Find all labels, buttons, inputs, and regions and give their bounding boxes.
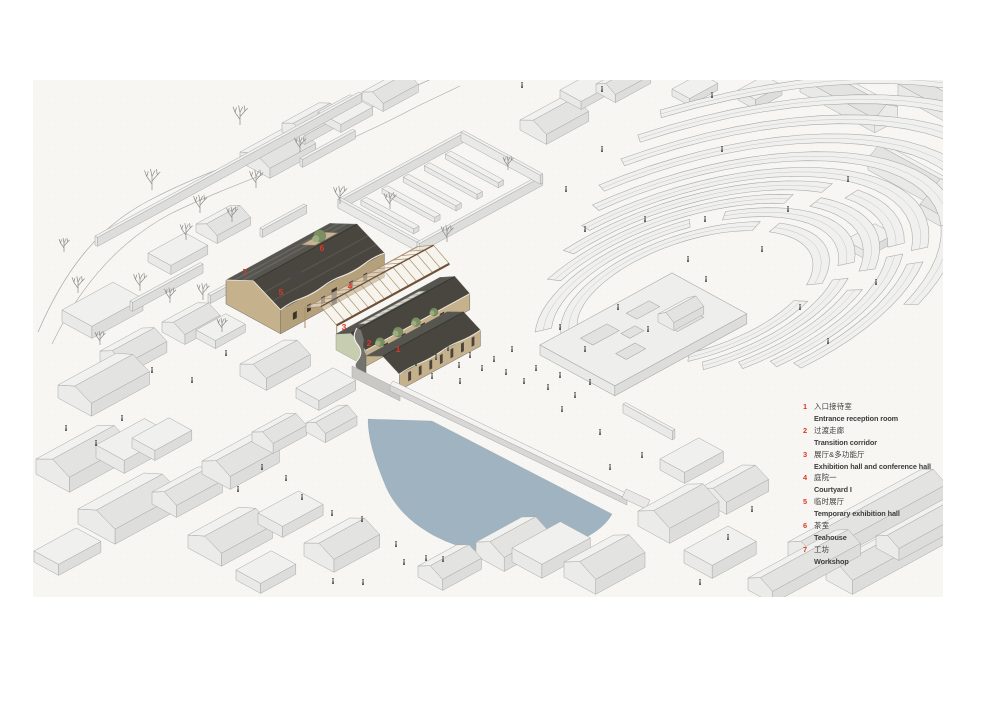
legend-item-label-en: Temporary exhibition hall <box>803 508 953 520</box>
vegetation <box>430 311 435 316</box>
legend-item-label-en: Workshop <box>803 556 953 568</box>
legend-item-label-zh: 临时展厅 <box>814 496 844 508</box>
colonnade-opening <box>461 342 464 353</box>
legend: 1入口接待室 Entrance reception room 2过渡走廊 Tra… <box>803 401 953 568</box>
legend-item-label-en: Entrance reception room <box>803 413 953 425</box>
person-figure <box>511 346 513 348</box>
person-figure <box>447 345 449 347</box>
person-figure <box>431 373 433 375</box>
colonnade-opening <box>472 336 475 347</box>
legend-item-label-zh: 展厅&多功能厅 <box>814 449 865 461</box>
colonnade-opening <box>419 365 422 376</box>
person-figure <box>584 226 586 228</box>
person-figure <box>481 365 483 367</box>
person-figure <box>121 415 123 417</box>
person-figure <box>584 346 586 348</box>
person-figure <box>442 556 444 558</box>
person-figure <box>332 578 334 580</box>
legend-item-label-zh: 入口接待室 <box>814 401 852 413</box>
legend-item: 5临时展厅 Temporary exhibition hall <box>803 496 953 520</box>
person-figure <box>285 475 287 477</box>
legend-item-number: 2 <box>803 425 814 437</box>
person-figure <box>565 186 567 188</box>
legend-item: 1入口接待室 Entrance reception room <box>803 401 953 425</box>
legend-item: 2过渡走廊 Transition corridor <box>803 425 953 449</box>
building-marker-5: 5 <box>279 287 284 297</box>
person-figure <box>875 279 877 281</box>
vegetation <box>411 321 416 326</box>
legend-item: 4庭院一 Courtyard I <box>803 472 953 496</box>
person-figure <box>699 579 701 581</box>
colonnade-opening <box>408 371 411 382</box>
person-figure <box>191 377 193 379</box>
legend-item-number: 3 <box>803 449 814 461</box>
person-figure <box>644 216 646 218</box>
site-axonometric-drawing: 1 2 3 4 5 6 7 1入口接待室 Entrance reception … <box>0 0 1003 710</box>
person-figure <box>493 356 495 358</box>
person-figure <box>535 365 537 367</box>
courtyard-tree <box>312 235 319 242</box>
person-figure <box>261 464 263 466</box>
legend-item-number: 1 <box>803 401 814 413</box>
person-figure <box>751 506 753 508</box>
vegetation <box>375 341 380 346</box>
person-figure <box>301 494 303 496</box>
person-figure <box>521 82 523 84</box>
person-figure <box>827 338 829 340</box>
legend-item-number: 6 <box>803 520 814 532</box>
person-figure <box>601 146 603 148</box>
person-figure <box>95 440 97 442</box>
person-figure <box>711 92 713 94</box>
building-marker-4: 4 <box>348 281 353 291</box>
person-figure <box>547 384 549 386</box>
person-figure <box>361 516 363 518</box>
person-figure <box>704 216 706 218</box>
site-plan-canvas <box>0 0 1003 710</box>
context-building-wall <box>540 174 543 184</box>
person-figure <box>237 486 239 488</box>
person-figure <box>599 429 601 431</box>
person-figure <box>647 326 649 328</box>
building-marker-7: 7 <box>243 267 248 277</box>
person-figure <box>458 362 460 364</box>
legend-item-number: 5 <box>803 496 814 508</box>
person-figure <box>362 579 364 581</box>
person-figure <box>601 86 603 88</box>
person-figure <box>523 378 525 380</box>
person-figure <box>574 392 576 394</box>
person-figure <box>705 276 707 278</box>
person-figure <box>331 510 333 512</box>
legend-item: 7工坊 Workshop <box>803 544 953 568</box>
legend-item-number: 7 <box>803 544 814 556</box>
person-figure <box>609 464 611 466</box>
person-figure <box>721 146 723 148</box>
person-figure <box>559 372 561 374</box>
person-figure <box>847 176 849 178</box>
building-marker-6: 6 <box>320 243 325 253</box>
legend-item-label-zh: 工坊 <box>814 544 829 556</box>
building-marker-3: 3 <box>342 322 347 332</box>
legend-item-label-en: Courtyard I <box>803 484 953 496</box>
person-figure <box>425 555 427 557</box>
legend-item-label-en: Transition corridor <box>803 437 953 449</box>
person-figure <box>559 324 561 326</box>
legend-item-label-en: Exhibition hall and conference hall <box>803 461 953 473</box>
person-figure <box>395 541 397 543</box>
person-figure <box>589 379 591 381</box>
legend-item-label-zh: 茶室 <box>814 520 829 532</box>
context-building-gable <box>968 219 987 241</box>
person-figure <box>225 350 227 352</box>
building-marker-1: 1 <box>396 344 401 354</box>
context-building-gable <box>951 101 970 125</box>
person-figure <box>65 425 67 427</box>
person-figure <box>423 346 425 348</box>
person-figure <box>505 369 507 371</box>
person-figure <box>435 354 437 356</box>
colonnade-opening <box>440 354 443 365</box>
person-figure <box>415 360 417 362</box>
person-figure <box>799 304 801 306</box>
person-figure <box>469 352 471 354</box>
person-figure <box>787 206 789 208</box>
person-figure <box>687 256 689 258</box>
person-figure <box>761 246 763 248</box>
legend-item: 3展厅&多功能厅 Exhibition hall and conference … <box>803 449 953 473</box>
person-figure <box>727 534 729 536</box>
legend-item-label-en: Teahouse <box>803 532 953 544</box>
person-figure <box>459 378 461 380</box>
context-building-wall <box>130 301 133 311</box>
colonnade-opening <box>429 359 432 370</box>
colonnade-opening <box>451 348 454 359</box>
legend-item: 6茶室 Teahouse <box>803 520 953 544</box>
vegetation <box>393 331 399 337</box>
legend-item-label-zh: 庭院一 <box>814 472 837 484</box>
person-figure <box>561 406 563 408</box>
legend-item-number: 4 <box>803 472 814 484</box>
person-figure <box>641 452 643 454</box>
building-marker-2: 2 <box>367 338 372 348</box>
person-figure <box>403 559 405 561</box>
person-figure <box>151 367 153 369</box>
context-building-wall <box>95 236 98 246</box>
context-building-wall <box>672 429 675 440</box>
legend-item-label-zh: 过渡走廊 <box>814 425 844 437</box>
person-figure <box>617 304 619 306</box>
